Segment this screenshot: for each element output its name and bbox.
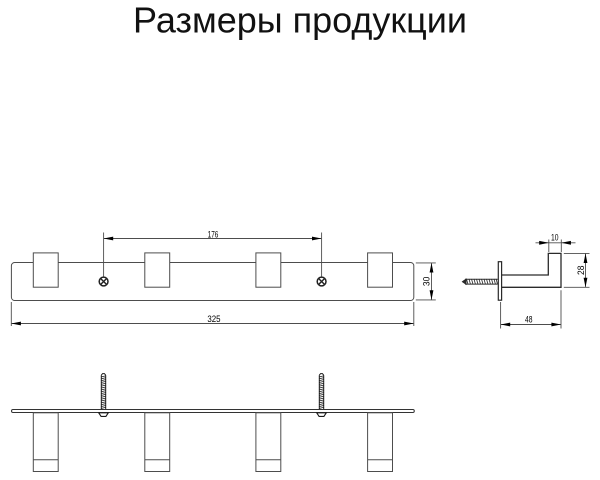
svg-text:10: 10 — [551, 232, 559, 242]
svg-text:48: 48 — [525, 314, 533, 324]
svg-text:325: 325 — [207, 314, 220, 324]
svg-text:176: 176 — [208, 229, 219, 239]
svg-text:28: 28 — [576, 266, 586, 275]
svg-text:Размеры продукции: Размеры продукции — [133, 0, 467, 41]
svg-text:30: 30 — [421, 277, 431, 286]
